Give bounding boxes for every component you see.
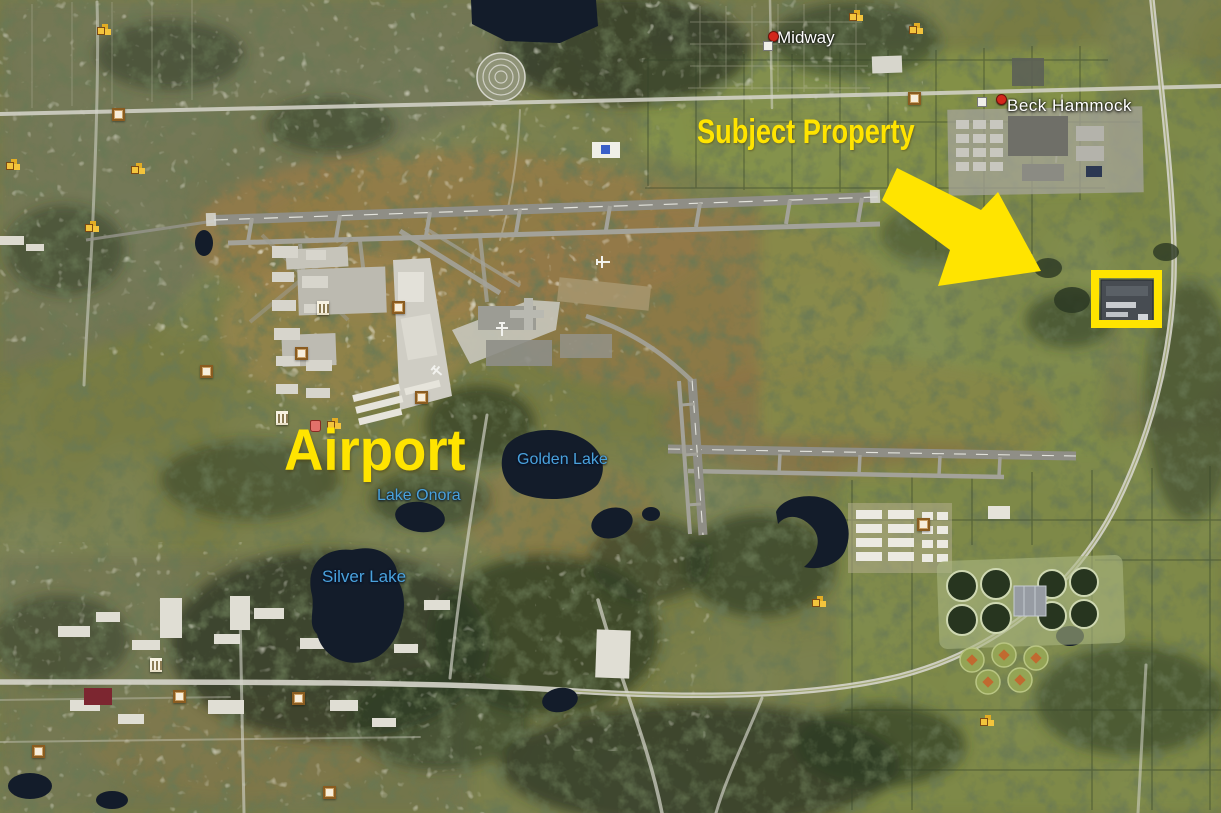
building-cluster-icon <box>812 599 820 607</box>
white-square-icon <box>977 97 987 107</box>
red-dot-marker <box>996 94 1007 105</box>
subject-property-label: Subject Property <box>697 116 915 148</box>
lake-label-golden-lake: Golden Lake <box>517 452 608 468</box>
subject-property-arrow <box>858 156 1058 296</box>
building-cluster-icon <box>909 26 917 34</box>
square-placemark-icon <box>392 301 405 314</box>
airport-label: Airport <box>284 423 466 478</box>
place-label-midway: Midway <box>777 29 835 46</box>
building-cluster-icon <box>849 13 857 21</box>
building-cluster-icon <box>131 166 139 174</box>
building-cluster-icon <box>980 718 988 726</box>
building-cluster-icon <box>97 27 105 35</box>
square-placemark-icon <box>173 690 186 703</box>
square-placemark-icon <box>917 518 930 531</box>
treatment-plant <box>937 555 1126 649</box>
lake-label-silver-lake: Silver Lake <box>322 568 406 585</box>
square-placemark-icon <box>112 108 125 121</box>
square-placemark-icon <box>200 365 213 378</box>
square-placemark-icon <box>908 92 921 105</box>
square-placemark-icon <box>292 692 305 705</box>
square-placemark-icon <box>295 347 308 360</box>
lake-label-lake-onora: Lake Onora <box>377 488 461 504</box>
landmark-icon <box>317 301 329 315</box>
place-label-beck-hammock: Beck Hammock <box>1007 97 1132 114</box>
water-feature <box>477 53 525 101</box>
aerial-map: Midway Beck Hammock Golden Lake Lake Ono… <box>0 0 1221 813</box>
square-placemark-icon <box>32 745 45 758</box>
square-placemark-icon <box>415 391 428 404</box>
subject-property-highlight-box <box>1091 270 1162 328</box>
building-cluster-icon <box>85 224 93 232</box>
landmark-icon <box>150 658 162 672</box>
square-placemark-icon <box>323 786 336 799</box>
white-square-icon <box>763 41 773 51</box>
building-cluster-icon <box>6 162 14 170</box>
